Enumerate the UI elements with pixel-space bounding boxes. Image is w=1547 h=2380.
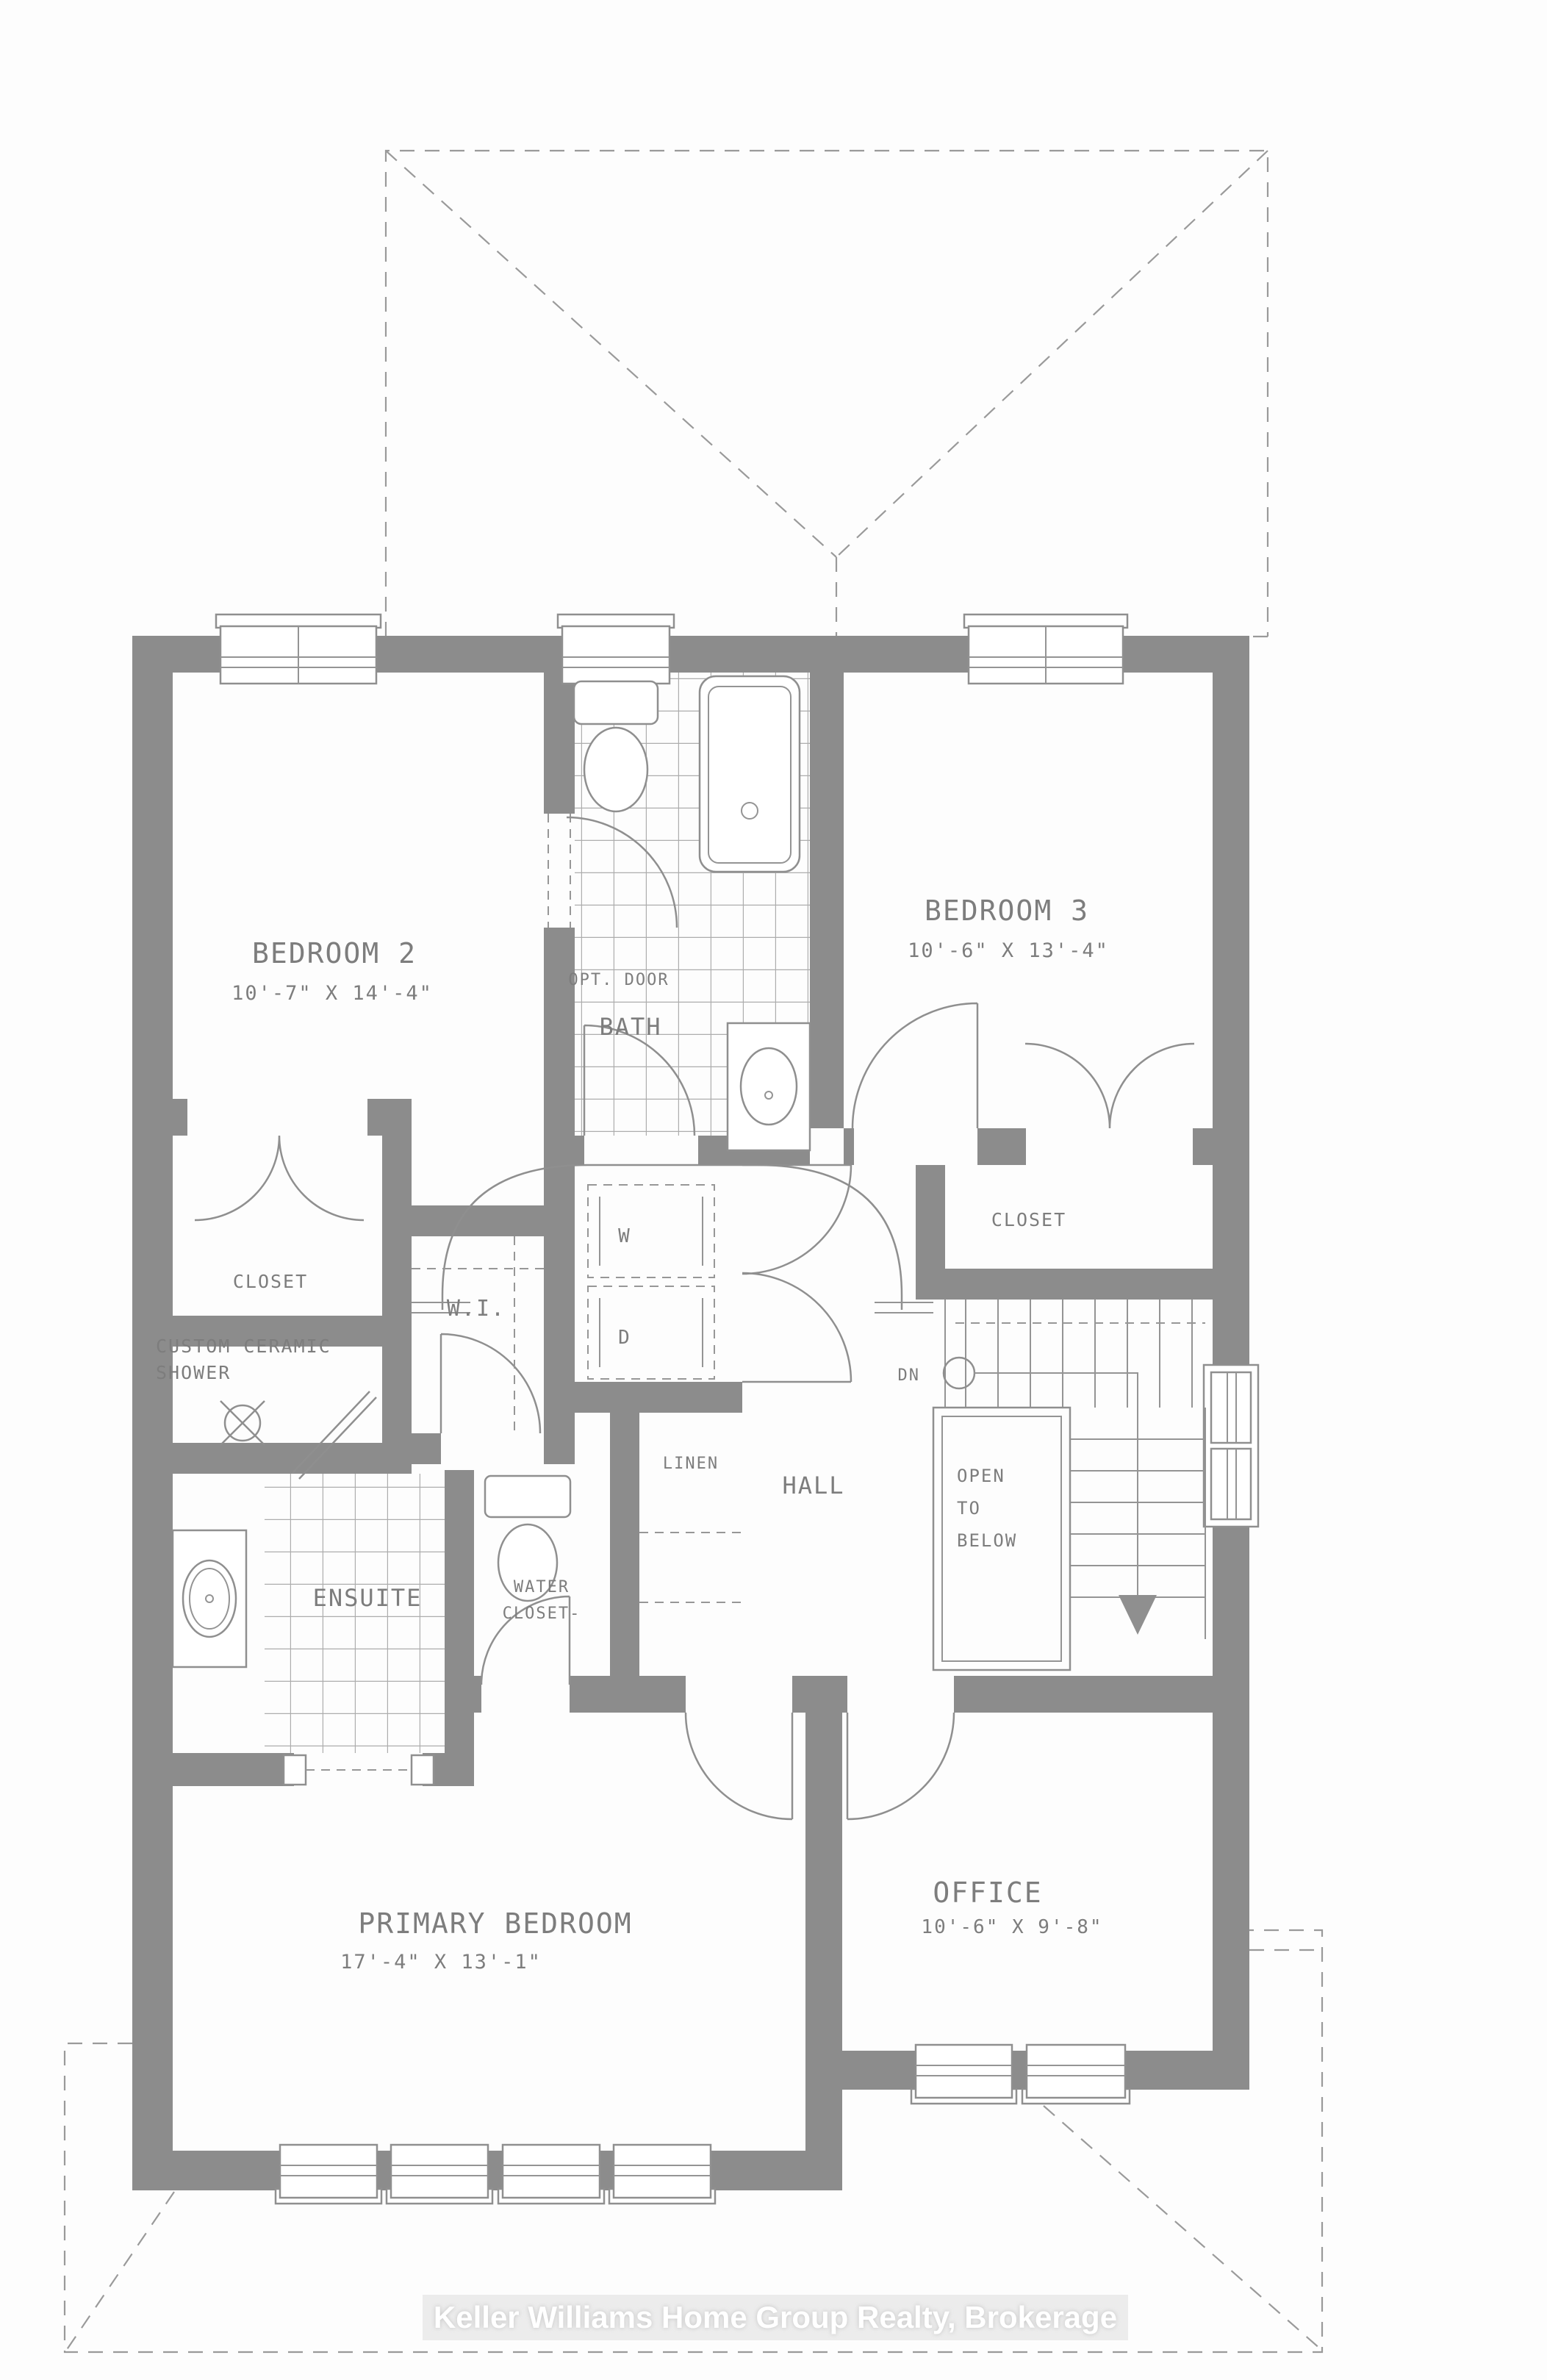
bedroom3-closet-doors bbox=[1025, 1044, 1194, 1128]
brokerage-watermark: Keller Williams Home Group Realty, Broke… bbox=[423, 2295, 1128, 2340]
office-door bbox=[847, 1713, 954, 1819]
ensuite-label: ENSUITE bbox=[313, 1584, 423, 1612]
primary-bedroom-dims: 17'-4" X 13'-1" bbox=[340, 1951, 542, 1974]
bath-window bbox=[558, 614, 674, 684]
laundry-doors bbox=[742, 1165, 851, 1382]
floor-plan-page: BEDROOM 2 10'-7" X 14'-4" BEDROOM 3 10'-… bbox=[0, 0, 1547, 2380]
closet-right-label: CLOSET bbox=[991, 1209, 1066, 1230]
walk-in-door bbox=[441, 1334, 540, 1433]
bedroom3-dims: 10'-6" X 13'-4" bbox=[908, 939, 1109, 962]
roof-outline-top bbox=[386, 151, 1268, 637]
roof-outline-bottom bbox=[65, 1930, 1322, 2352]
primary-bedroom-label: PRIMARY BEDROOM bbox=[358, 1907, 632, 1940]
down-label: DN bbox=[898, 1366, 921, 1385]
floor-plan-drawing: BEDROOM 2 10'-7" X 14'-4" BEDROOM 3 10'-… bbox=[0, 0, 1547, 2380]
office-dims: 10'-6" X 9'-8" bbox=[921, 1916, 1102, 1938]
bedroom2-label: BEDROOM 2 bbox=[252, 937, 417, 969]
bedroom3-label: BEDROOM 3 bbox=[925, 895, 1089, 927]
ensuite-sink bbox=[173, 1530, 246, 1667]
walk-in-label: W.I. bbox=[447, 1296, 506, 1322]
closet-left-label: CLOSET bbox=[233, 1271, 308, 1292]
stair-upper-treads bbox=[966, 1300, 1192, 1408]
bath-sink bbox=[728, 1023, 810, 1150]
open-to-below-line3: BELOW bbox=[957, 1530, 1017, 1551]
shower-label-line2: SHOWER bbox=[156, 1362, 231, 1383]
bath-label: BATH bbox=[599, 1013, 661, 1041]
dryer-label: D bbox=[618, 1327, 631, 1349]
shower-label-line1: CUSTOM CERAMIC bbox=[156, 1336, 331, 1357]
bedroom2-window bbox=[216, 614, 381, 684]
open-to-below-line1: OPEN bbox=[957, 1466, 1005, 1486]
hall-label: HALL bbox=[782, 1472, 844, 1499]
bathtub bbox=[700, 676, 800, 872]
opt-door-label: OPT. DOOR bbox=[568, 971, 669, 989]
washer-dryer bbox=[588, 1185, 714, 1379]
stair-down-path bbox=[944, 1358, 1157, 1635]
water-closet-label-line1: WATER bbox=[514, 1578, 570, 1596]
ensuite-passage bbox=[284, 1755, 434, 1785]
stair-bay-window bbox=[1204, 1365, 1258, 1527]
bedroom3-door bbox=[853, 1003, 977, 1128]
bedroom2-closet-doors bbox=[195, 1136, 364, 1220]
water-closet-label-line2: CLOSET- bbox=[503, 1605, 581, 1623]
bedroom2-dims: 10'-7" X 14'-4" bbox=[231, 982, 433, 1005]
washer-label: W bbox=[618, 1225, 631, 1247]
primary-bedroom-door bbox=[686, 1713, 792, 1819]
open-to-below-line2: TO bbox=[957, 1498, 981, 1519]
office-label: OFFICE bbox=[933, 1877, 1042, 1909]
bedroom3-window bbox=[964, 614, 1127, 684]
hall-archway bbox=[412, 1165, 933, 1313]
shower-symbol bbox=[220, 1401, 265, 1445]
linen-label: LINEN bbox=[663, 1455, 719, 1473]
